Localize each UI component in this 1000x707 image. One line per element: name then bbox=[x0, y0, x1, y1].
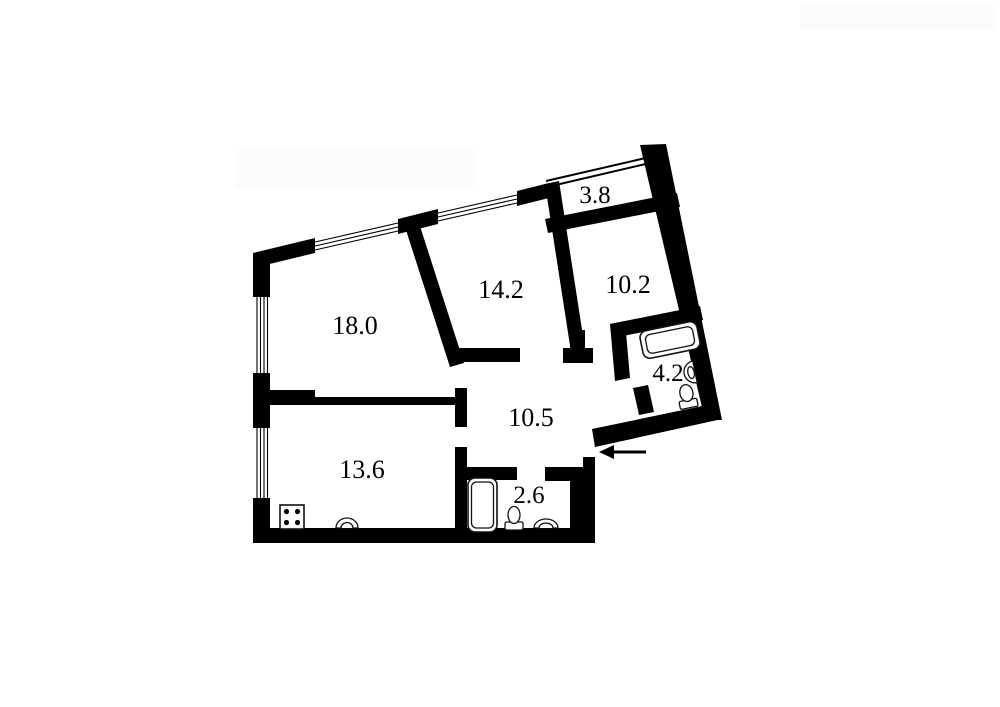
wall-18-bottom-b bbox=[315, 397, 458, 405]
wall-top-seg3 bbox=[517, 183, 549, 206]
floor-plan-svg: 18.0 14.2 10.2 3.8 4.2 10.5 13.6 2.6 bbox=[0, 0, 1000, 707]
wall-bath-left-low bbox=[633, 385, 654, 415]
sink-wc bbox=[534, 519, 558, 528]
window-top-18 bbox=[315, 219, 398, 253]
wall-div-18-14-foot bbox=[452, 348, 520, 362]
room-label-living-room: 18.0 bbox=[332, 311, 378, 340]
wall-wc-top-right bbox=[545, 467, 583, 481]
room-label-wc: 2.6 bbox=[513, 482, 544, 509]
wall-18-bottom-a bbox=[270, 390, 315, 405]
wall-hall-left-lower bbox=[455, 447, 467, 528]
wall-left bbox=[253, 253, 270, 543]
toilet-wc bbox=[505, 507, 523, 531]
watermark bbox=[235, 4, 995, 188]
sink-kitchen bbox=[336, 518, 358, 528]
room-label-bathroom: 4.2 bbox=[652, 360, 683, 387]
room-label-bedroom-2: 10.2 bbox=[605, 270, 651, 299]
bathtub-wc bbox=[468, 478, 497, 532]
wall-div-18-14 bbox=[405, 223, 464, 367]
wall-hall-left-upper bbox=[455, 388, 467, 427]
room-label-kitchen: 13.6 bbox=[339, 455, 385, 484]
room-label-hallway: 10.5 bbox=[508, 403, 554, 432]
wall-entrance-top bbox=[592, 405, 722, 447]
wall-bottom bbox=[253, 528, 595, 543]
window-left-lower bbox=[253, 428, 270, 498]
window-top-14 bbox=[438, 191, 517, 224]
floor-plan-page: 18.0 14.2 10.2 3.8 4.2 10.5 13.6 2.6 bbox=[0, 0, 1000, 707]
entrance-arrow bbox=[599, 445, 646, 459]
stove bbox=[280, 505, 304, 529]
room-label-bedroom-1: 14.2 bbox=[478, 275, 524, 304]
window-left-upper bbox=[253, 297, 270, 373]
room-label-balcony: 3.8 bbox=[579, 182, 610, 209]
wall-top-seg1 bbox=[253, 238, 315, 268]
